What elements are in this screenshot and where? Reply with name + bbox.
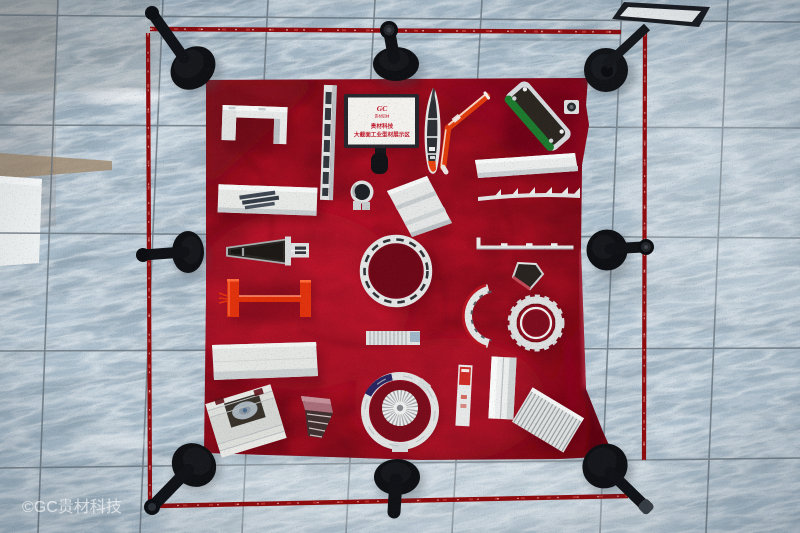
svg-text:©GC贵材科技: ©GC贵材科技 — [22, 498, 122, 516]
